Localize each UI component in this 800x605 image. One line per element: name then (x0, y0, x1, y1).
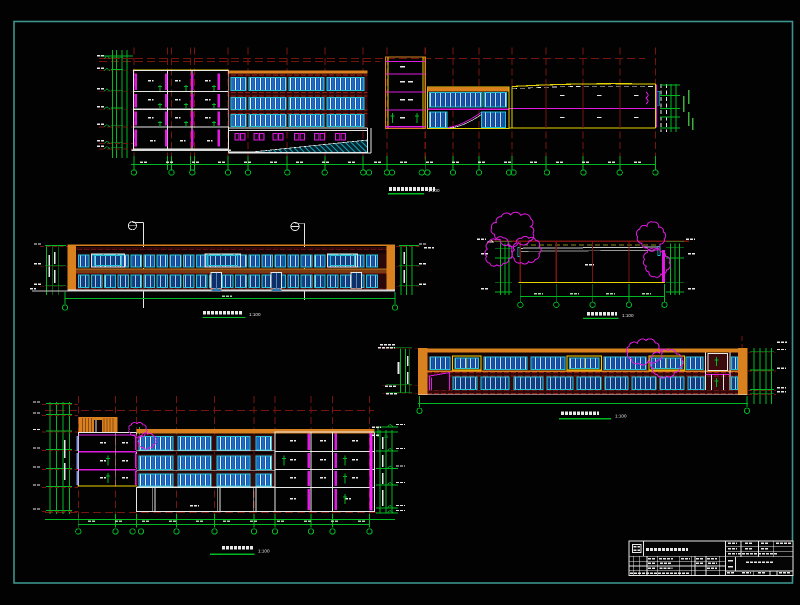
svg-text:24: 24 (384, 434, 389, 439)
svg-text:1:100: 1:100 (622, 313, 634, 318)
svg-text:1:100: 1:100 (258, 549, 270, 554)
svg-text:1:100: 1:100 (249, 312, 261, 317)
svg-text:1:100: 1:100 (428, 188, 440, 193)
svg-text:1:100: 1:100 (615, 414, 627, 419)
